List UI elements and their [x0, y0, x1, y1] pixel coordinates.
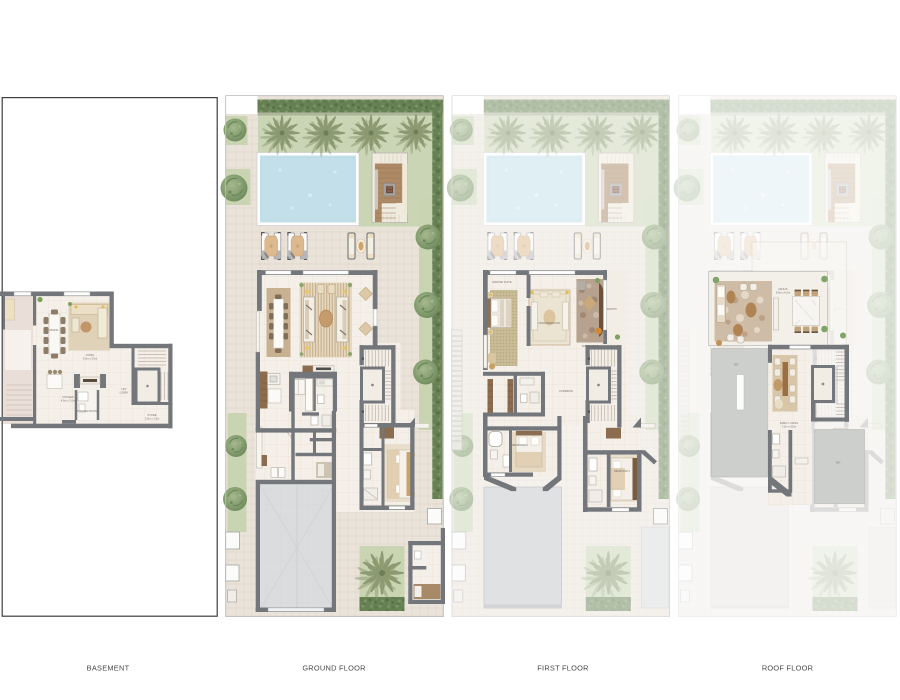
- svg-text:4.5m x 2.0m: 4.5m x 2.0m: [61, 399, 75, 403]
- svg-text:LOBBY: LOBBY: [120, 391, 129, 395]
- svg-text:FIRST FLOOR: FIRST FLOOR: [537, 664, 588, 673]
- svg-text:LIFT: LIFT: [121, 387, 127, 391]
- svg-text:STORE: STORE: [148, 413, 157, 417]
- svg-text:6.0m x 3.5m: 6.0m x 3.5m: [83, 357, 97, 361]
- svg-text:ROOF FLOOR: ROOF FLOOR: [762, 664, 813, 673]
- svg-text:LIVING: LIVING: [86, 353, 95, 357]
- svg-text:3.0m x 1.5m: 3.0m x 1.5m: [145, 417, 159, 421]
- svg-text:BASEMENT: BASEMENT: [87, 664, 130, 673]
- svg-text:KITCHEN: KITCHEN: [62, 395, 74, 399]
- svg-text:DINING: DINING: [49, 328, 58, 332]
- svg-text:POWDER ROOM: POWDER ROOM: [77, 409, 97, 413]
- svg-text:GROUND FLOOR: GROUND FLOOR: [302, 664, 365, 673]
